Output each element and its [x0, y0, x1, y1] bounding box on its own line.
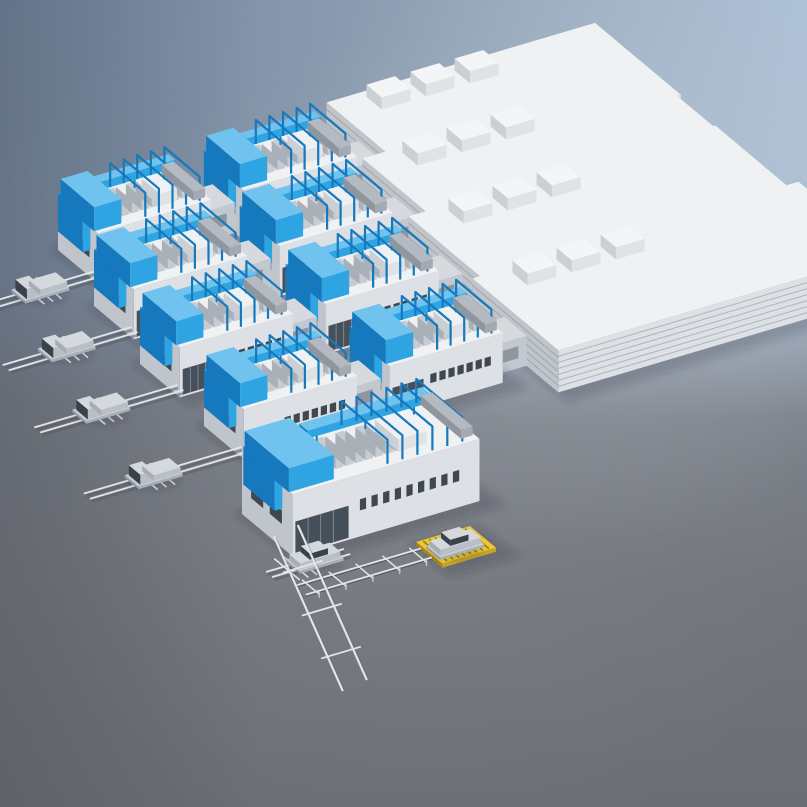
window [312, 408, 318, 419]
window [383, 491, 389, 504]
window [458, 364, 464, 375]
factory-3d-render [0, 0, 807, 807]
window [321, 405, 327, 416]
window [439, 370, 445, 381]
window [467, 362, 473, 373]
window [441, 473, 447, 486]
window [372, 494, 378, 507]
window [453, 470, 459, 483]
window [406, 484, 412, 497]
window [430, 477, 436, 490]
window [430, 372, 436, 383]
window [330, 402, 336, 413]
window [395, 487, 401, 500]
window [448, 367, 454, 378]
window [485, 356, 491, 367]
window [476, 359, 482, 370]
window [360, 497, 366, 510]
window [303, 410, 309, 421]
factory-render-canvas [0, 0, 807, 807]
window [418, 480, 424, 493]
